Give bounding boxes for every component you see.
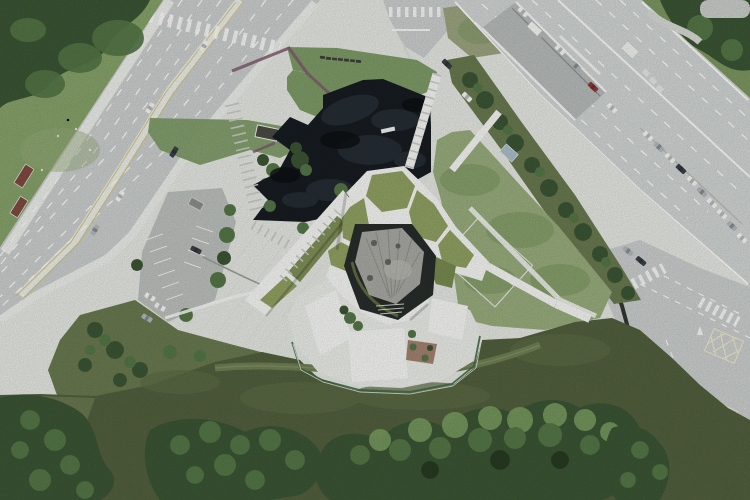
photo-grain-overlay xyxy=(0,0,750,500)
scene-root xyxy=(0,0,750,500)
aerial-photograph xyxy=(0,0,750,500)
screenshot-stage xyxy=(0,0,750,500)
